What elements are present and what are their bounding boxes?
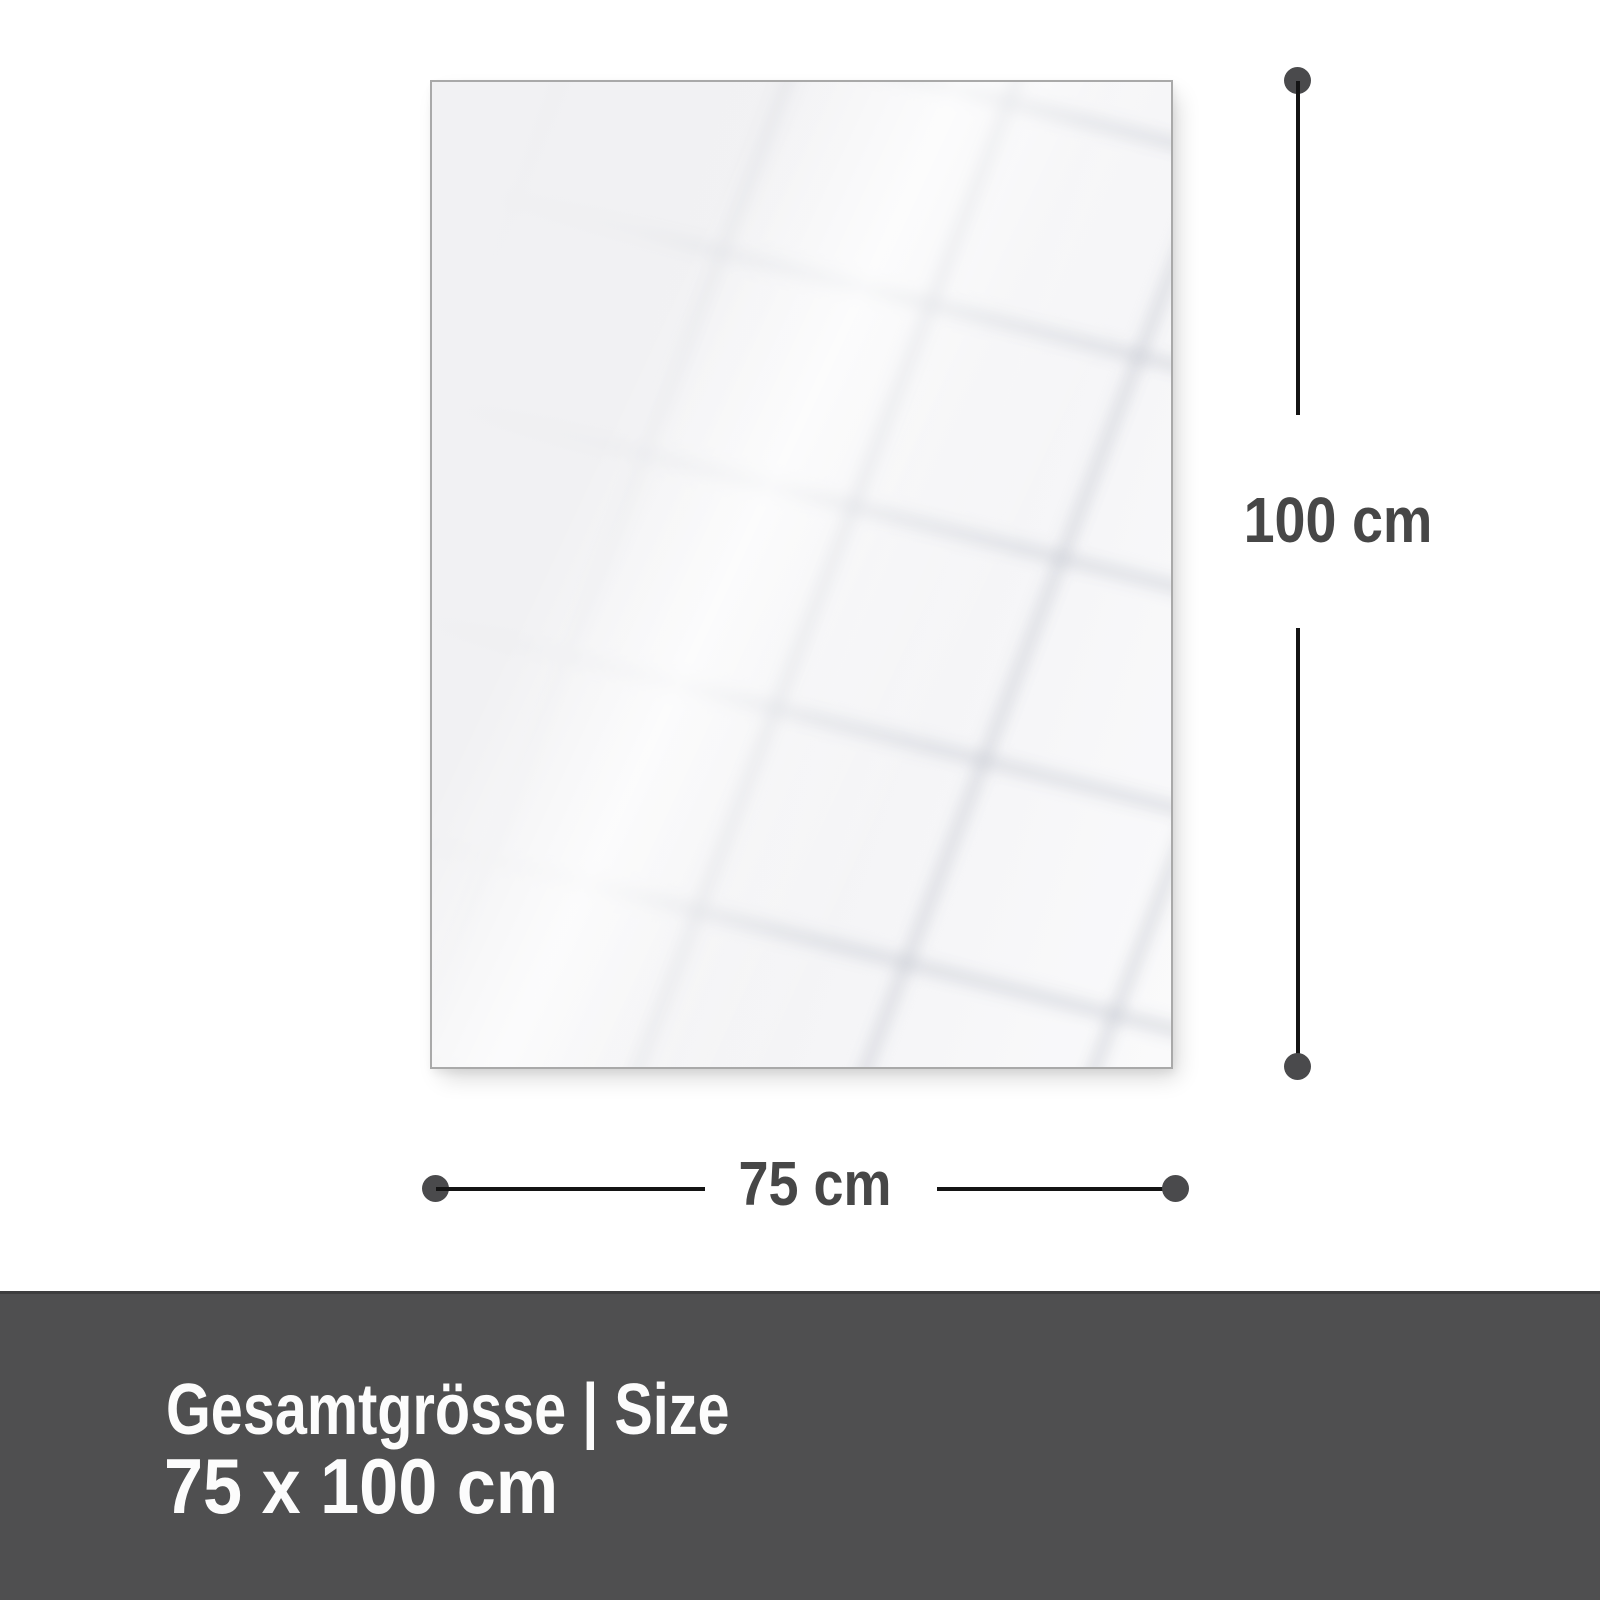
height-dimension-endpoint-bottom-dot: [1284, 1053, 1311, 1080]
product-panel: [430, 80, 1173, 1069]
footer-size-value: 75 x 100 cm: [164, 1447, 558, 1525]
width-dimension-line-left: [436, 1187, 705, 1191]
footer-bar: Gesamtgrösse | Size 75 x 100 cm: [0, 1291, 1600, 1600]
height-dimension-line-lower: [1296, 628, 1300, 1067]
panel-gloss-sheen: [432, 82, 1171, 1067]
width-label: 75 cm: [739, 1154, 892, 1216]
width-dimension-line-right: [937, 1187, 1176, 1191]
height-label: 100 cm: [1244, 488, 1433, 552]
product-size-diagram: 100 cm 75 cm Gesamtgrösse | Size 75 x 10…: [0, 0, 1600, 1600]
width-dimension-endpoint-right-dot: [1162, 1175, 1189, 1202]
height-dimension-line-upper: [1296, 81, 1300, 415]
footer-title: Gesamtgrösse | Size: [166, 1374, 730, 1446]
